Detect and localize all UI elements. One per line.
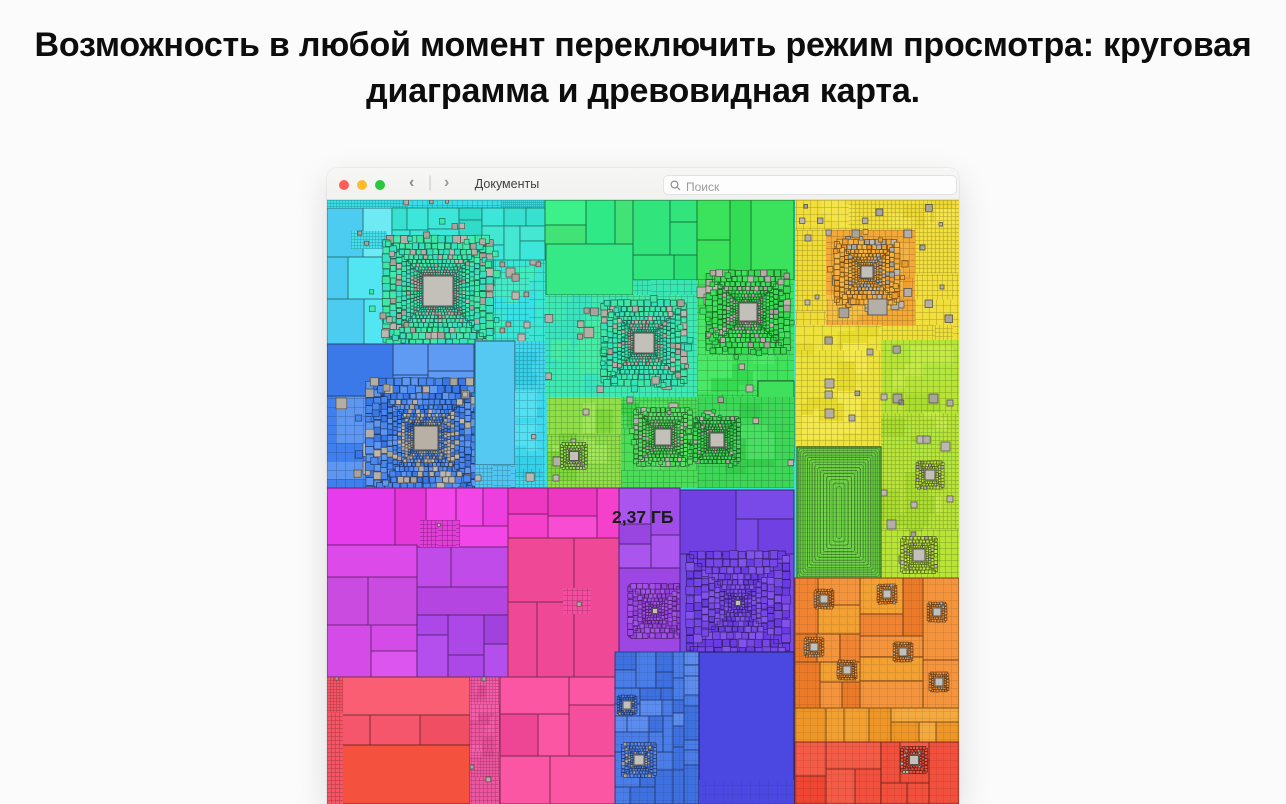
svg-text:2,37 ГБ: 2,37 ГБ <box>612 507 673 527</box>
